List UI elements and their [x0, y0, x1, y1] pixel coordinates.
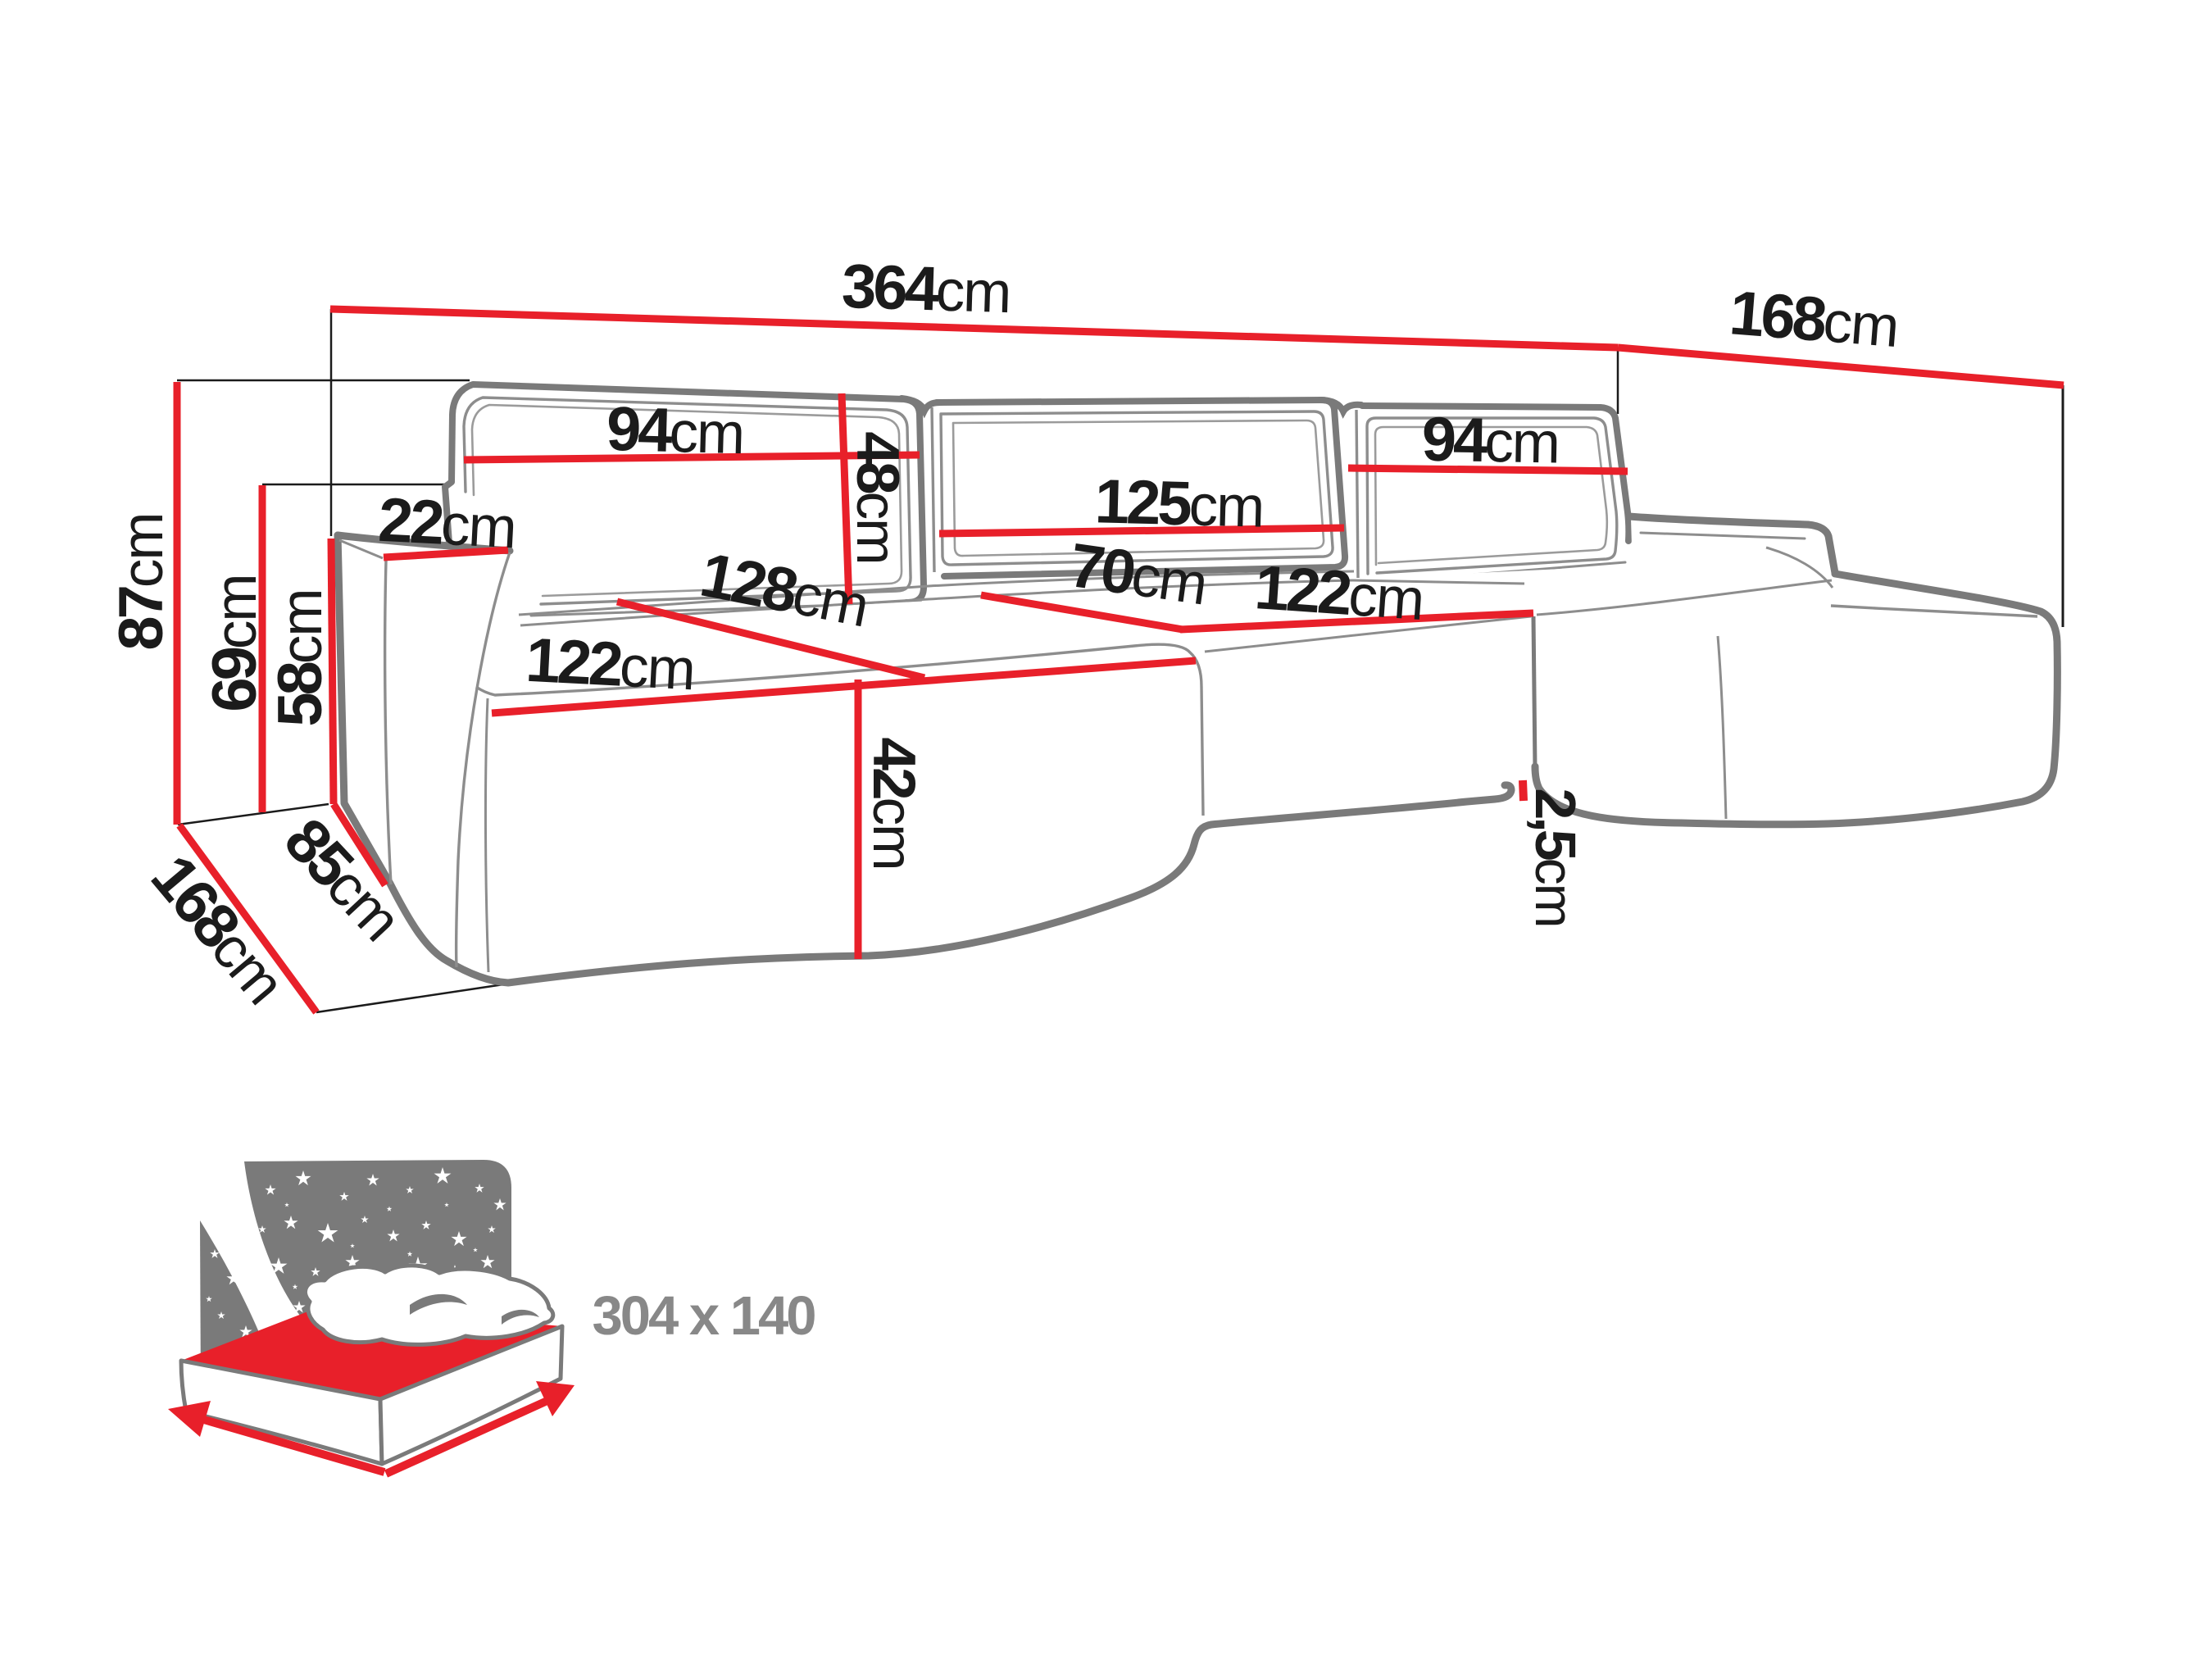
svg-text:87cm: 87cm: [107, 513, 176, 650]
svg-text:125cm: 125cm: [1094, 466, 1265, 540]
svg-text:2,5cm: 2,5cm: [1524, 788, 1587, 926]
svg-text:94cm: 94cm: [1421, 405, 1560, 477]
svg-text:69cm: 69cm: [200, 575, 270, 711]
svg-text:42cm: 42cm: [861, 737, 927, 869]
svg-text:304 x 140: 304 x 140: [592, 1285, 815, 1347]
svg-text:94cm: 94cm: [606, 394, 744, 467]
svg-text:48cm: 48cm: [844, 431, 911, 563]
svg-text:22cm: 22cm: [377, 485, 517, 562]
svg-text:122cm: 122cm: [525, 625, 697, 704]
svg-text:58cm: 58cm: [266, 589, 335, 726]
svg-text:364cm: 364cm: [841, 252, 1011, 326]
